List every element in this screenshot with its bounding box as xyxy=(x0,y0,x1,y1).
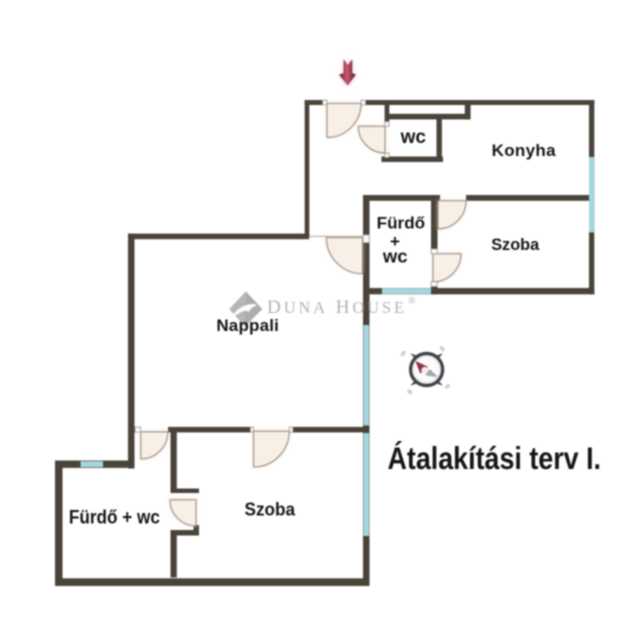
svg-text:Szoba: Szoba xyxy=(491,235,540,254)
svg-text:Szoba: Szoba xyxy=(245,500,296,520)
svg-text:Konyha: Konyha xyxy=(492,141,557,160)
svg-text:wc: wc xyxy=(400,127,427,148)
svg-text:wc: wc xyxy=(382,246,408,267)
svg-text:DUNA HOUSE®: DUNA HOUSE® xyxy=(267,296,418,318)
svg-text:Átalakítási terv I.: Átalakítási terv I. xyxy=(388,440,602,476)
svg-text:Fürdő + wc: Fürdő + wc xyxy=(69,508,160,529)
svg-text:Nappali: Nappali xyxy=(216,316,279,335)
svg-text:Fürdő: Fürdő xyxy=(377,214,426,233)
